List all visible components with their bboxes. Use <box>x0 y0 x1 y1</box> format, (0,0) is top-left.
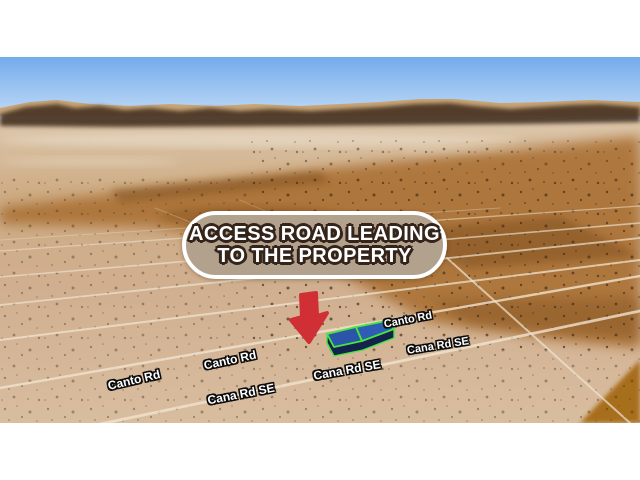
playa-streak <box>0 157 180 167</box>
property-listing-image: ACCESS ROAD LEADING TO THE PROPERTY Cant… <box>0 0 640 480</box>
callout-text-line2: TO THE PROPERTY <box>217 245 412 267</box>
callout-text-line1: ACCESS ROAD LEADING <box>189 223 440 245</box>
access-road-callout: ACCESS ROAD LEADING TO THE PROPERTY <box>182 211 447 279</box>
